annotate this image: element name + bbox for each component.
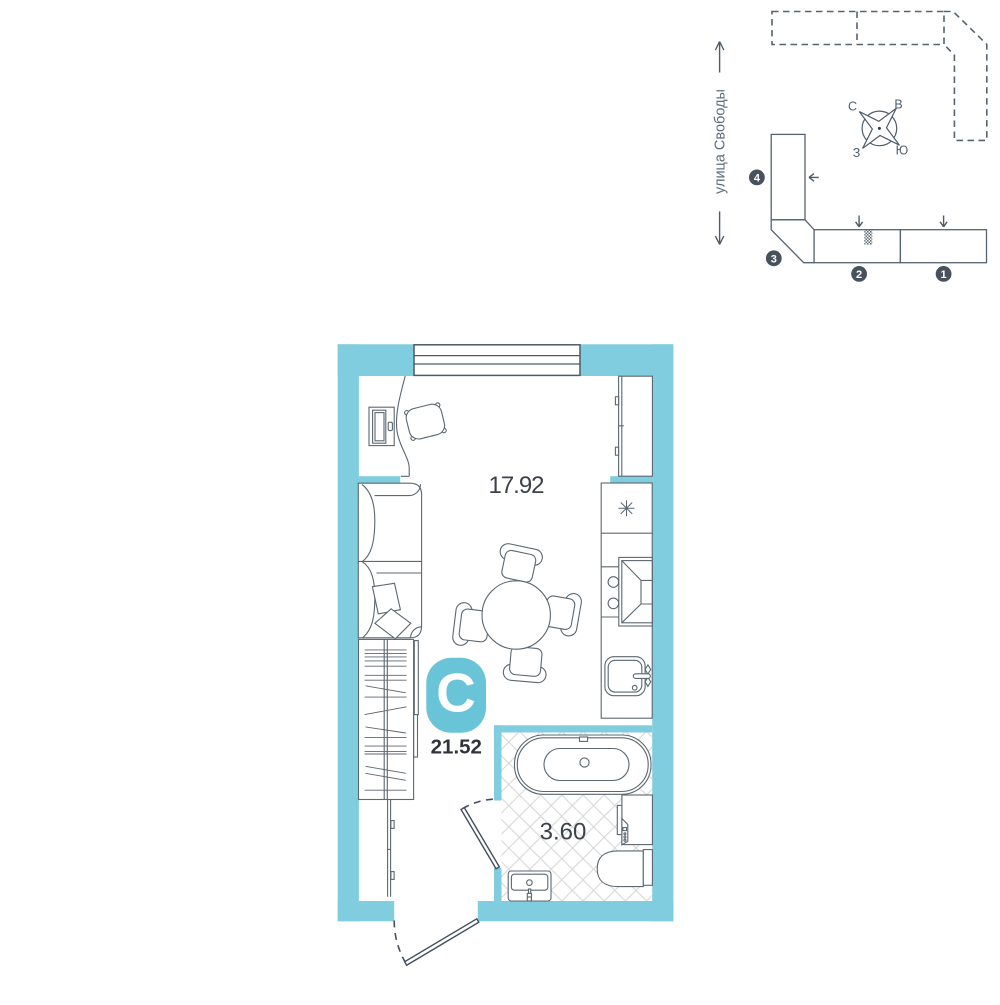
svg-text:Ю: Ю bbox=[896, 144, 909, 158]
svg-text:17.92: 17.92 bbox=[488, 472, 544, 499]
svg-text:1: 1 bbox=[941, 269, 947, 281]
svg-text:4: 4 bbox=[754, 172, 761, 184]
svg-text:З: З bbox=[853, 146, 861, 160]
svg-text:С: С bbox=[436, 662, 476, 724]
svg-text:В: В bbox=[894, 98, 902, 112]
svg-text:3: 3 bbox=[771, 253, 777, 265]
svg-text:улица Свободы: улица Свободы bbox=[713, 89, 729, 194]
svg-text:21.52: 21.52 bbox=[431, 736, 482, 759]
svg-text:С: С bbox=[848, 100, 857, 114]
svg-text:3.60: 3.60 bbox=[540, 819, 587, 846]
svg-text:2: 2 bbox=[856, 269, 862, 281]
